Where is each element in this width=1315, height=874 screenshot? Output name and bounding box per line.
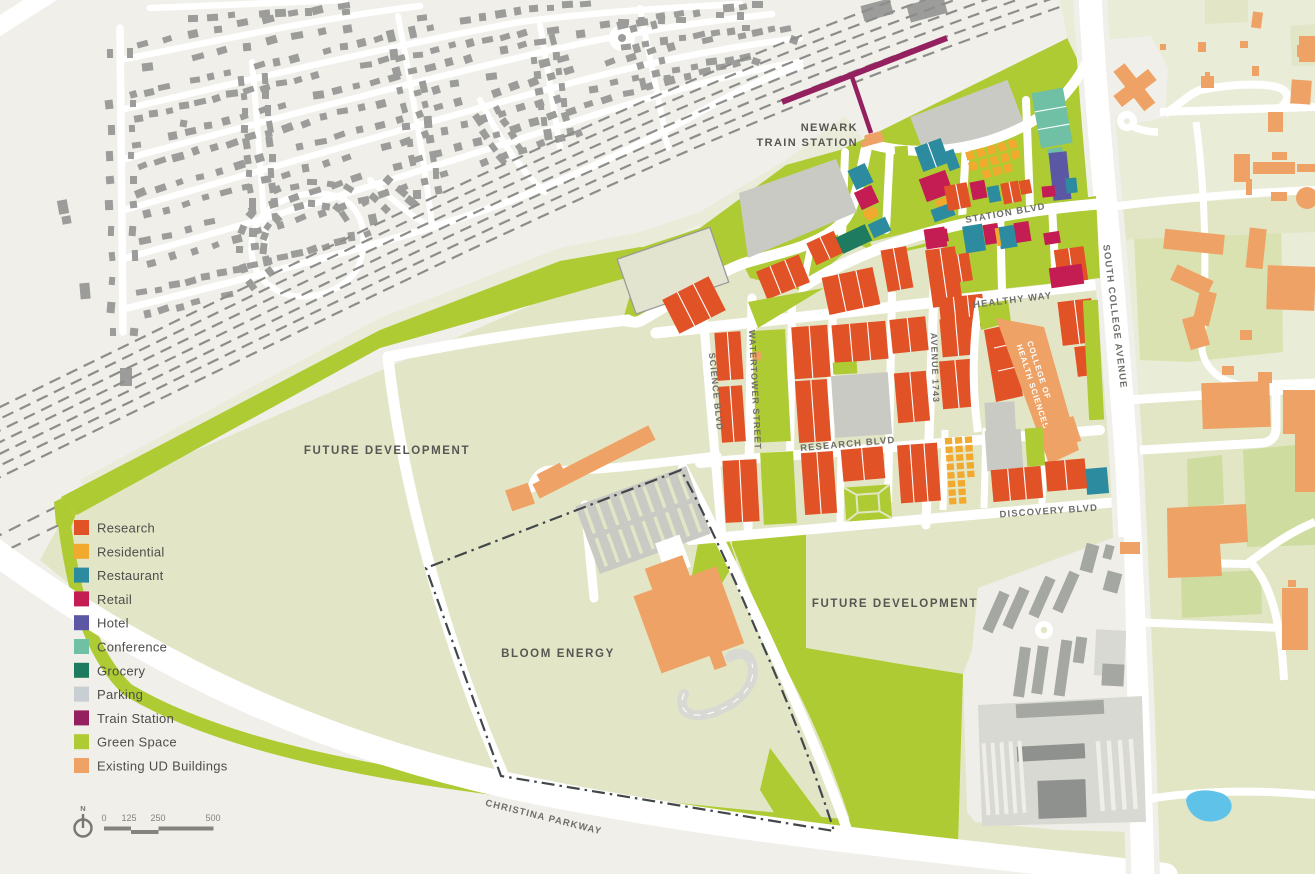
svg-text:Grocery: Grocery bbox=[97, 663, 146, 678]
svg-text:BLOOM ENERGY: BLOOM ENERGY bbox=[501, 648, 615, 660]
svg-text:500: 500 bbox=[205, 813, 220, 823]
svg-text:TRAIN STATION: TRAIN STATION bbox=[756, 137, 858, 149]
svg-text:Existing UD Buildings: Existing UD Buildings bbox=[97, 759, 228, 774]
svg-text:N: N bbox=[80, 804, 85, 813]
svg-text:FUTURE DEVELOPMENT: FUTURE DEVELOPMENT bbox=[812, 598, 978, 610]
svg-text:NEWARK: NEWARK bbox=[801, 122, 858, 134]
svg-text:Parking: Parking bbox=[97, 687, 143, 702]
svg-text:0: 0 bbox=[101, 813, 106, 823]
svg-text:Hotel: Hotel bbox=[97, 616, 129, 631]
svg-text:250: 250 bbox=[150, 813, 165, 823]
svg-text:Retail: Retail bbox=[97, 592, 132, 607]
svg-text:Restaurant: Restaurant bbox=[97, 568, 164, 583]
svg-text:Residential: Residential bbox=[97, 544, 165, 559]
svg-text:Conference: Conference bbox=[97, 640, 167, 655]
svg-text:Green Space: Green Space bbox=[97, 735, 177, 750]
svg-text:Train Station: Train Station bbox=[97, 711, 174, 726]
svg-text:Research: Research bbox=[97, 521, 155, 536]
svg-text:125: 125 bbox=[121, 813, 136, 823]
svg-text:FUTURE DEVELOPMENT: FUTURE DEVELOPMENT bbox=[304, 445, 470, 457]
